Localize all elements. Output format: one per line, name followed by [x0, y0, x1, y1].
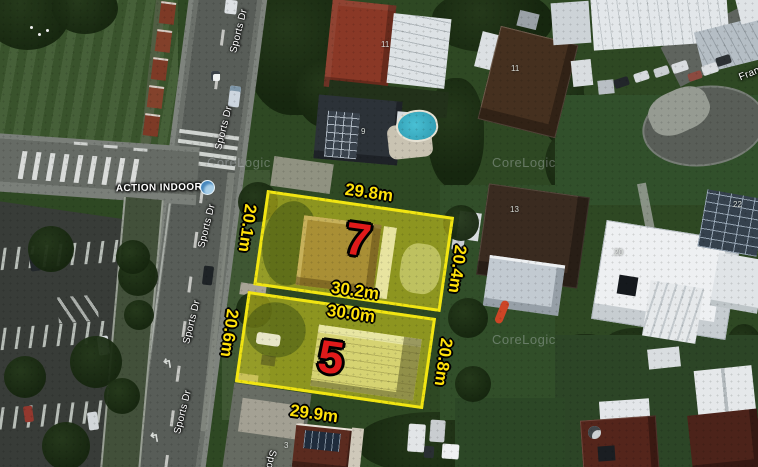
house-number: 22 [733, 200, 742, 209]
unit-roof [143, 113, 161, 137]
maroon-roof [580, 415, 660, 467]
tree-canopy [4, 356, 46, 398]
unit-roof [147, 85, 165, 109]
bus-stop-icon [211, 71, 220, 81]
light-post [30, 26, 33, 29]
house-number: 3 [284, 441, 288, 450]
maroon-roof [687, 409, 758, 467]
parked-car [633, 70, 650, 83]
light-post [46, 29, 49, 32]
trailer [407, 423, 426, 452]
light-post [38, 33, 41, 36]
tree-tint [242, 298, 309, 361]
white-shed [647, 346, 681, 369]
zebra-crossing [19, 151, 138, 187]
unit-roof [155, 29, 173, 53]
action-indoor-label: ACTION INDOOR [116, 182, 202, 195]
trailer [441, 443, 459, 459]
white-metal-roof [387, 13, 452, 89]
lot5-dark-patch [261, 355, 276, 367]
car-on-road [224, 0, 238, 15]
tree-canopy [42, 422, 90, 467]
grass-block-bottom [455, 398, 565, 467]
poi-pin-icon [200, 180, 215, 195]
lot7-pale-patch [397, 241, 444, 296]
ribbed-roof-section [642, 280, 704, 344]
hatched-marking [57, 295, 99, 324]
house-number: 20 [614, 248, 623, 257]
satellite-dish [588, 426, 601, 439]
unit-roof [151, 57, 169, 81]
driveway-apron [270, 156, 334, 194]
white-roof-22 [710, 252, 758, 314]
parked-car [653, 65, 670, 78]
house-number: 9 [361, 127, 365, 136]
dark-vehicle [424, 446, 435, 459]
trailer [429, 420, 445, 443]
satellite-map-canvas: ↰ ↰ [0, 0, 758, 467]
gray-shed-roof [483, 255, 565, 316]
solar-panel-square [597, 445, 615, 461]
solar-roof-22 [697, 189, 758, 257]
parked-car [613, 76, 630, 89]
road-dash [74, 142, 88, 146]
road-dash [133, 148, 147, 152]
unit-roof [159, 1, 177, 25]
solar-panels [324, 111, 360, 160]
tree-canopy [448, 298, 488, 338]
corelogic-watermark: CoreLogic [207, 155, 271, 170]
small-hut [571, 59, 594, 87]
corelogic-watermark: CoreLogic [492, 155, 556, 170]
road-centerline-dash [187, 276, 192, 292]
street-label-frances: Franc [737, 63, 758, 83]
road-dash [104, 145, 118, 149]
road-centerline-dash [164, 455, 169, 467]
tree-canopy [116, 240, 150, 274]
tree-canopy [104, 378, 140, 414]
house-number: 13 [510, 205, 519, 214]
house-number: 11 [381, 40, 389, 49]
tree-canopy [455, 366, 491, 402]
white-shed [551, 1, 592, 46]
tree-canopy [28, 226, 74, 272]
road-centerline-dash [176, 366, 181, 382]
house-number: 11 [511, 64, 519, 73]
solar-panel-square [617, 275, 639, 297]
corelogic-watermark: CoreLogic [492, 332, 556, 347]
road-centerline-dash [220, 30, 225, 46]
small-hut [597, 79, 614, 95]
solar-panels [303, 430, 341, 452]
zebra-crossing-bar [179, 129, 239, 141]
tree-canopy [124, 300, 154, 330]
